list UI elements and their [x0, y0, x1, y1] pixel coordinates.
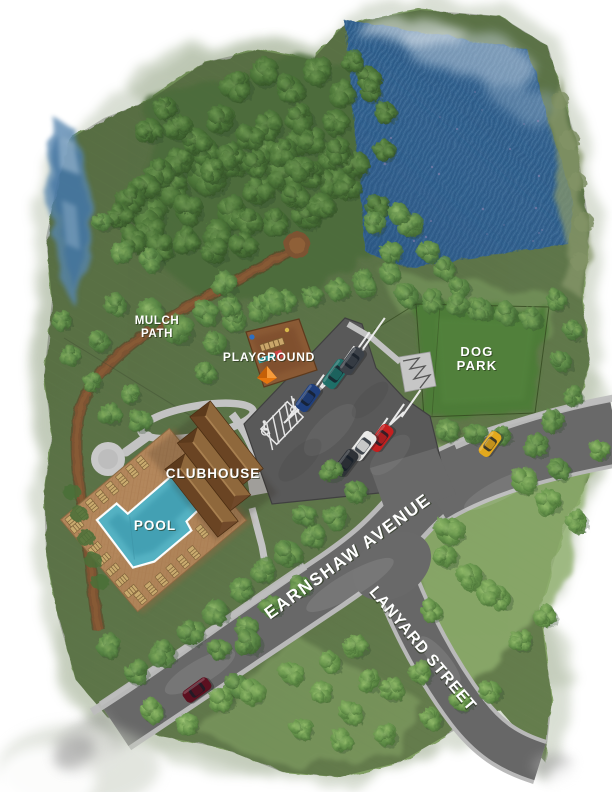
svg-text:PATH: PATH	[141, 328, 173, 340]
svg-text:CLUBHOUSE: CLUBHOUSE	[166, 466, 261, 481]
svg-text:PARK: PARK	[457, 358, 498, 373]
svg-text:POOL: POOL	[134, 518, 176, 533]
svg-text:MULCH: MULCH	[135, 315, 180, 327]
svg-text:DOG: DOG	[460, 344, 493, 359]
svg-text:PLAYGROUND: PLAYGROUND	[223, 350, 315, 364]
